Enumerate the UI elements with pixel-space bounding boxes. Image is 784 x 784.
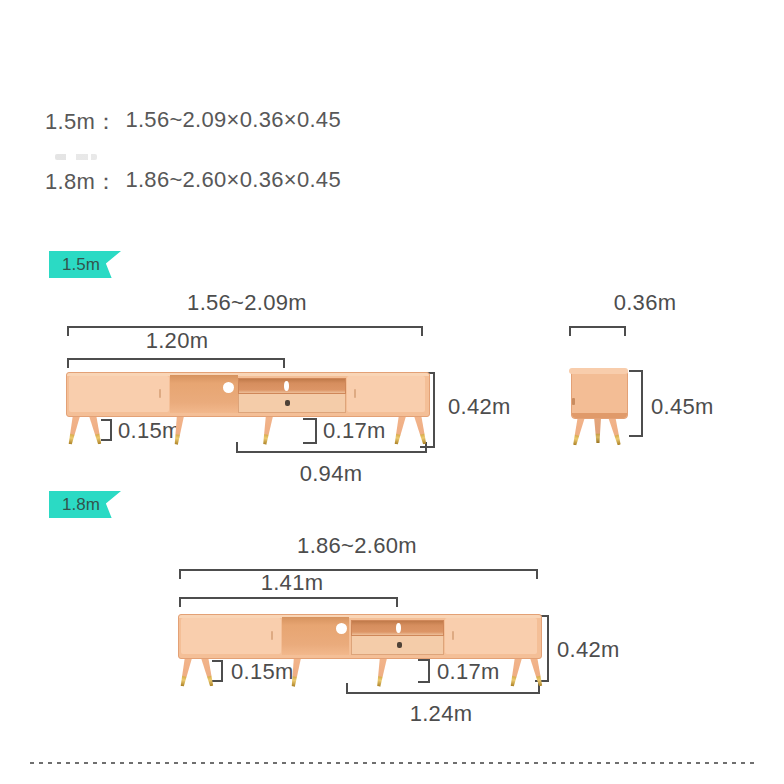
dim-bracket-leg-height [212, 660, 223, 682]
cabinet-body [178, 614, 542, 659]
leg [259, 412, 275, 445]
dim-label-overall-height: 0.45m [651, 396, 714, 418]
dim-label-fixed-width: 1.20m [146, 330, 209, 352]
right-door [445, 618, 537, 654]
cabinet-bottom-edge [572, 413, 627, 418]
dim-bracket-leg-height [101, 419, 112, 441]
dim-label-total-range: 1.86~2.60m [297, 535, 417, 557]
door-handle [452, 631, 454, 640]
spec-line-1-5: 1.5m： 1.56~2.09×0.36×0.45 [45, 107, 341, 137]
dim-bracket-fixed-width [67, 358, 285, 368]
spec-value: 1.86~2.60×0.36×0.45 [125, 167, 341, 197]
dim-bracket-overall-height [629, 370, 643, 437]
dim-label-depth: 0.36m [614, 292, 677, 314]
dim-label-fixed-width: 1.41m [261, 572, 324, 594]
shelf-notch [284, 381, 289, 391]
dim-label-clearance: 0.17m [323, 420, 386, 442]
size-badge-1-5m: 1.5m [49, 251, 121, 278]
dim-label-clearance: 0.17m [437, 661, 500, 683]
spec-label: 1.8m： [45, 167, 117, 197]
spec-line-1-8: 1.8m： 1.86~2.60×0.36×0.45 [45, 167, 341, 197]
dim-bracket-fixed-width [179, 597, 398, 607]
dotted-divider [30, 762, 757, 764]
door-handle [572, 398, 575, 405]
left-door [181, 618, 281, 654]
dim-bracket-total-range [67, 326, 423, 336]
right-door [347, 376, 425, 412]
dim-label-total-range: 1.56~2.09m [187, 292, 307, 314]
left-door [69, 376, 169, 412]
cable-hole [223, 382, 234, 393]
door-handle [159, 389, 161, 398]
drawer-knob [397, 642, 402, 648]
dim-label-leg-height: 0.15m [118, 420, 181, 442]
drawer [238, 394, 346, 413]
slide-shelf [238, 378, 346, 394]
dim-label-bottom-span: 1.24m [410, 703, 473, 725]
cabinet-body [66, 372, 430, 417]
shelf-notch [396, 623, 401, 633]
spec-value: 1.56~2.09×0.36×0.45 [125, 107, 341, 137]
dim-label-leg-height: 0.15m [231, 661, 294, 683]
dim-bracket-clearance [418, 659, 430, 683]
cable-hole [336, 623, 347, 634]
spec-label: 1.5m： [45, 107, 117, 137]
dim-bracket-depth [569, 326, 626, 336]
door-handle [271, 631, 273, 640]
open-compartment [170, 375, 238, 413]
size-badge-1-8m: 1.8m [49, 491, 121, 518]
cabinet-side-body [571, 370, 628, 419]
door-handle [354, 389, 356, 398]
dim-bracket-total-range [179, 569, 538, 579]
drawer-knob [285, 400, 290, 406]
cabinet-top-edge [569, 368, 628, 374]
dim-bracket-clearance [303, 418, 317, 444]
dim-label-body-height: 0.42m [448, 396, 511, 418]
clipped-text-artifact [55, 154, 97, 160]
dim-label-bottom-span: 0.94m [300, 463, 363, 485]
product-dimension-sheet: 1.5m： 1.56~2.09×0.36×0.45 1.8m： 1.86~2.6… [0, 0, 784, 784]
dim-label-body-height: 0.42m [557, 639, 620, 661]
